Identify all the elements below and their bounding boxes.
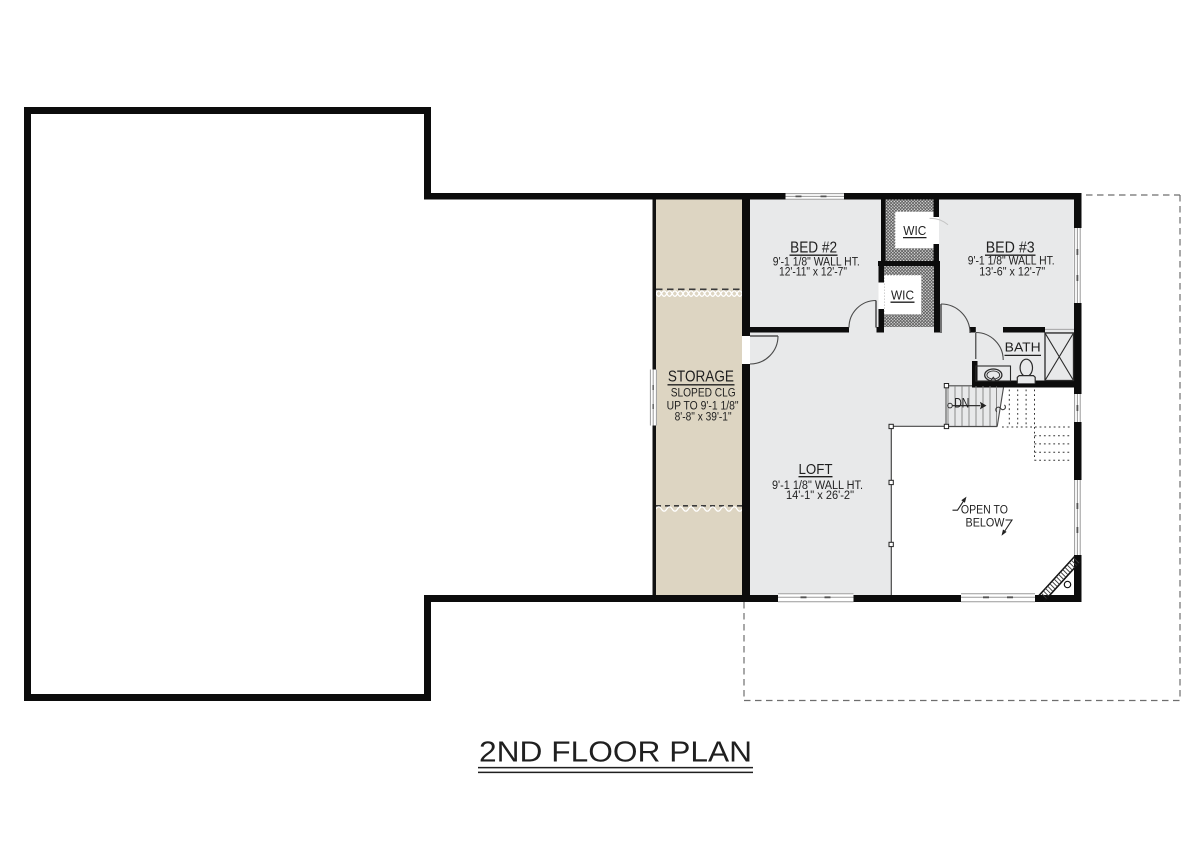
svg-text:13'-6" x 12'-7": 13'-6" x 12'-7" [979,265,1045,279]
svg-text:BATH: BATH [1005,340,1041,355]
svg-text:WIC: WIC [891,287,914,302]
svg-text:SLOPED CLG: SLOPED CLG [671,385,736,399]
svg-text:DN: DN [954,395,969,410]
svg-text:14'-1" x 26'-2": 14'-1" x 26'-2" [786,488,854,502]
svg-text:BELOW: BELOW [966,516,1005,530]
svg-text:LOFT: LOFT [799,462,833,478]
svg-text:2ND FLOOR PLAN: 2ND FLOOR PLAN [479,737,752,769]
svg-text:WIC: WIC [903,223,926,238]
svg-text:8'-8" x 39'-1": 8'-8" x 39'-1" [675,409,732,423]
svg-text:12'-11" x 12'-7": 12'-11" x 12'-7" [779,265,847,279]
svg-text:STORAGE: STORAGE [668,369,734,386]
svg-text:OPEN TO: OPEN TO [961,503,1008,517]
